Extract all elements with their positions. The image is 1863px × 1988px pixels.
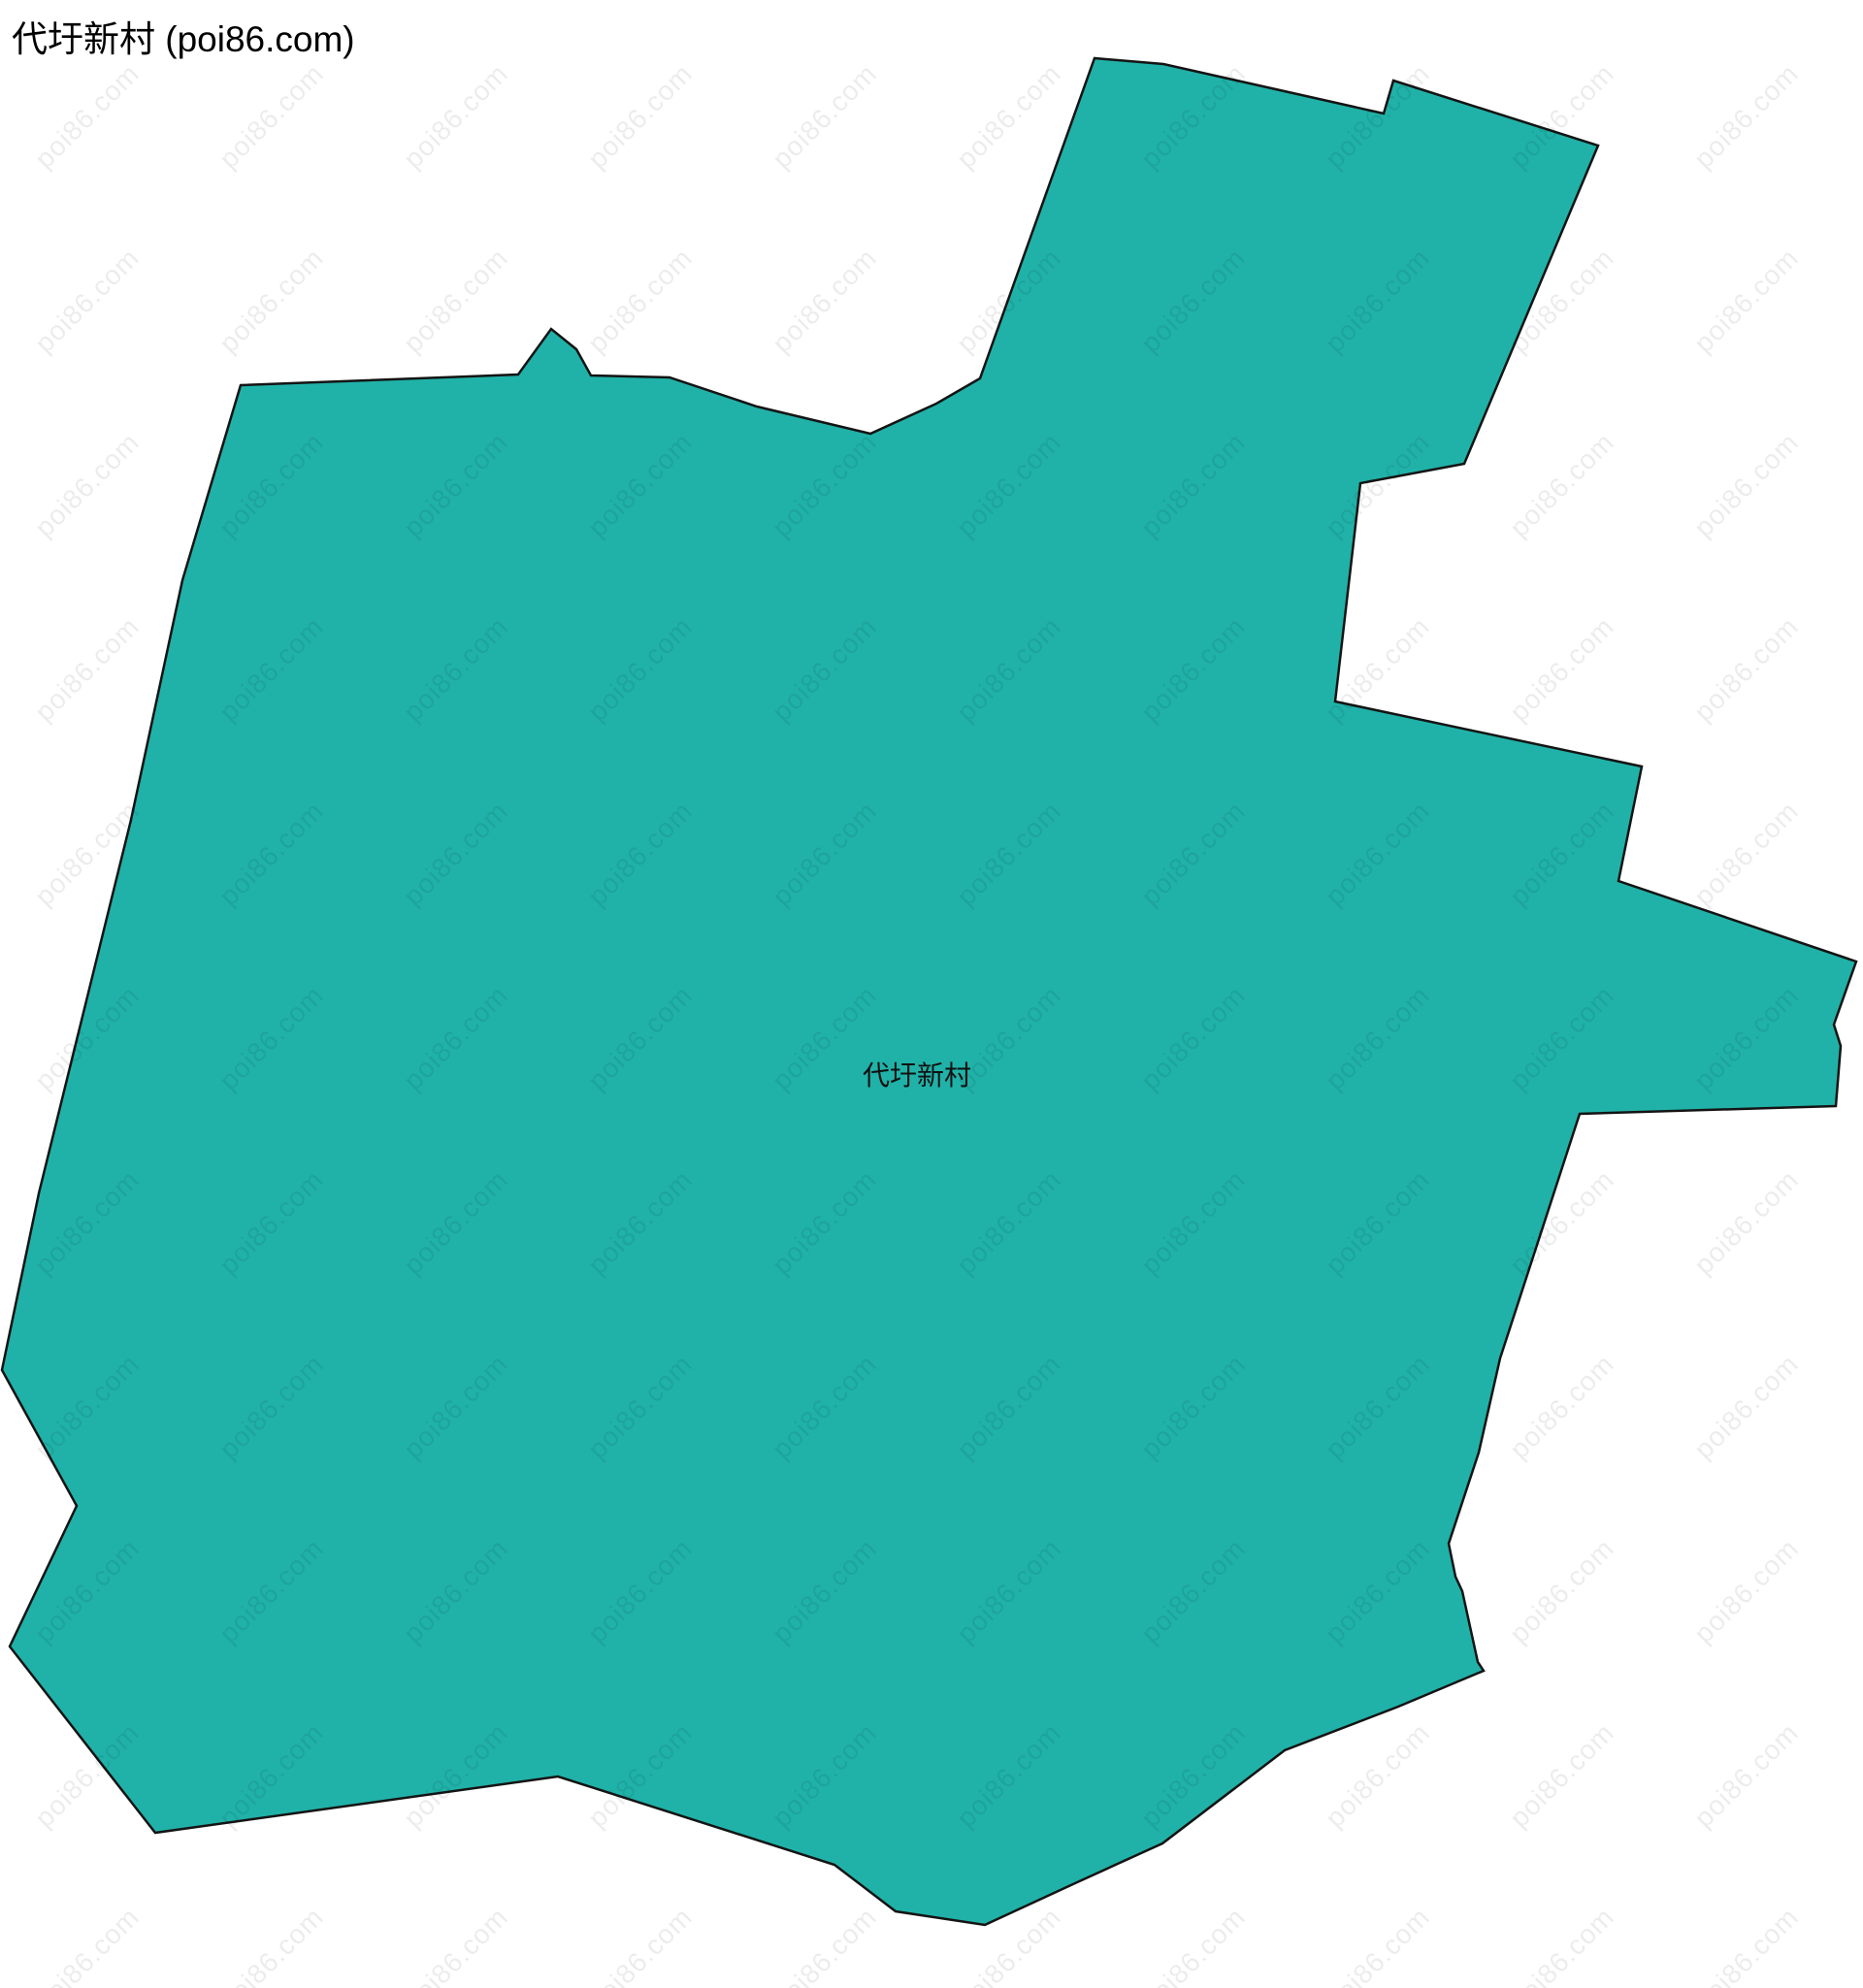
page-title: 代圩新村 (poi86.com) [12, 10, 355, 62]
map-canvas: poi86.compoi86.compoi86.compoi86.compoi8… [0, 0, 1863, 1988]
region-boundary-polygon [2, 58, 1856, 1925]
region-label: 代圩新村 [863, 1055, 971, 1093]
boundary-map [0, 0, 1863, 1988]
